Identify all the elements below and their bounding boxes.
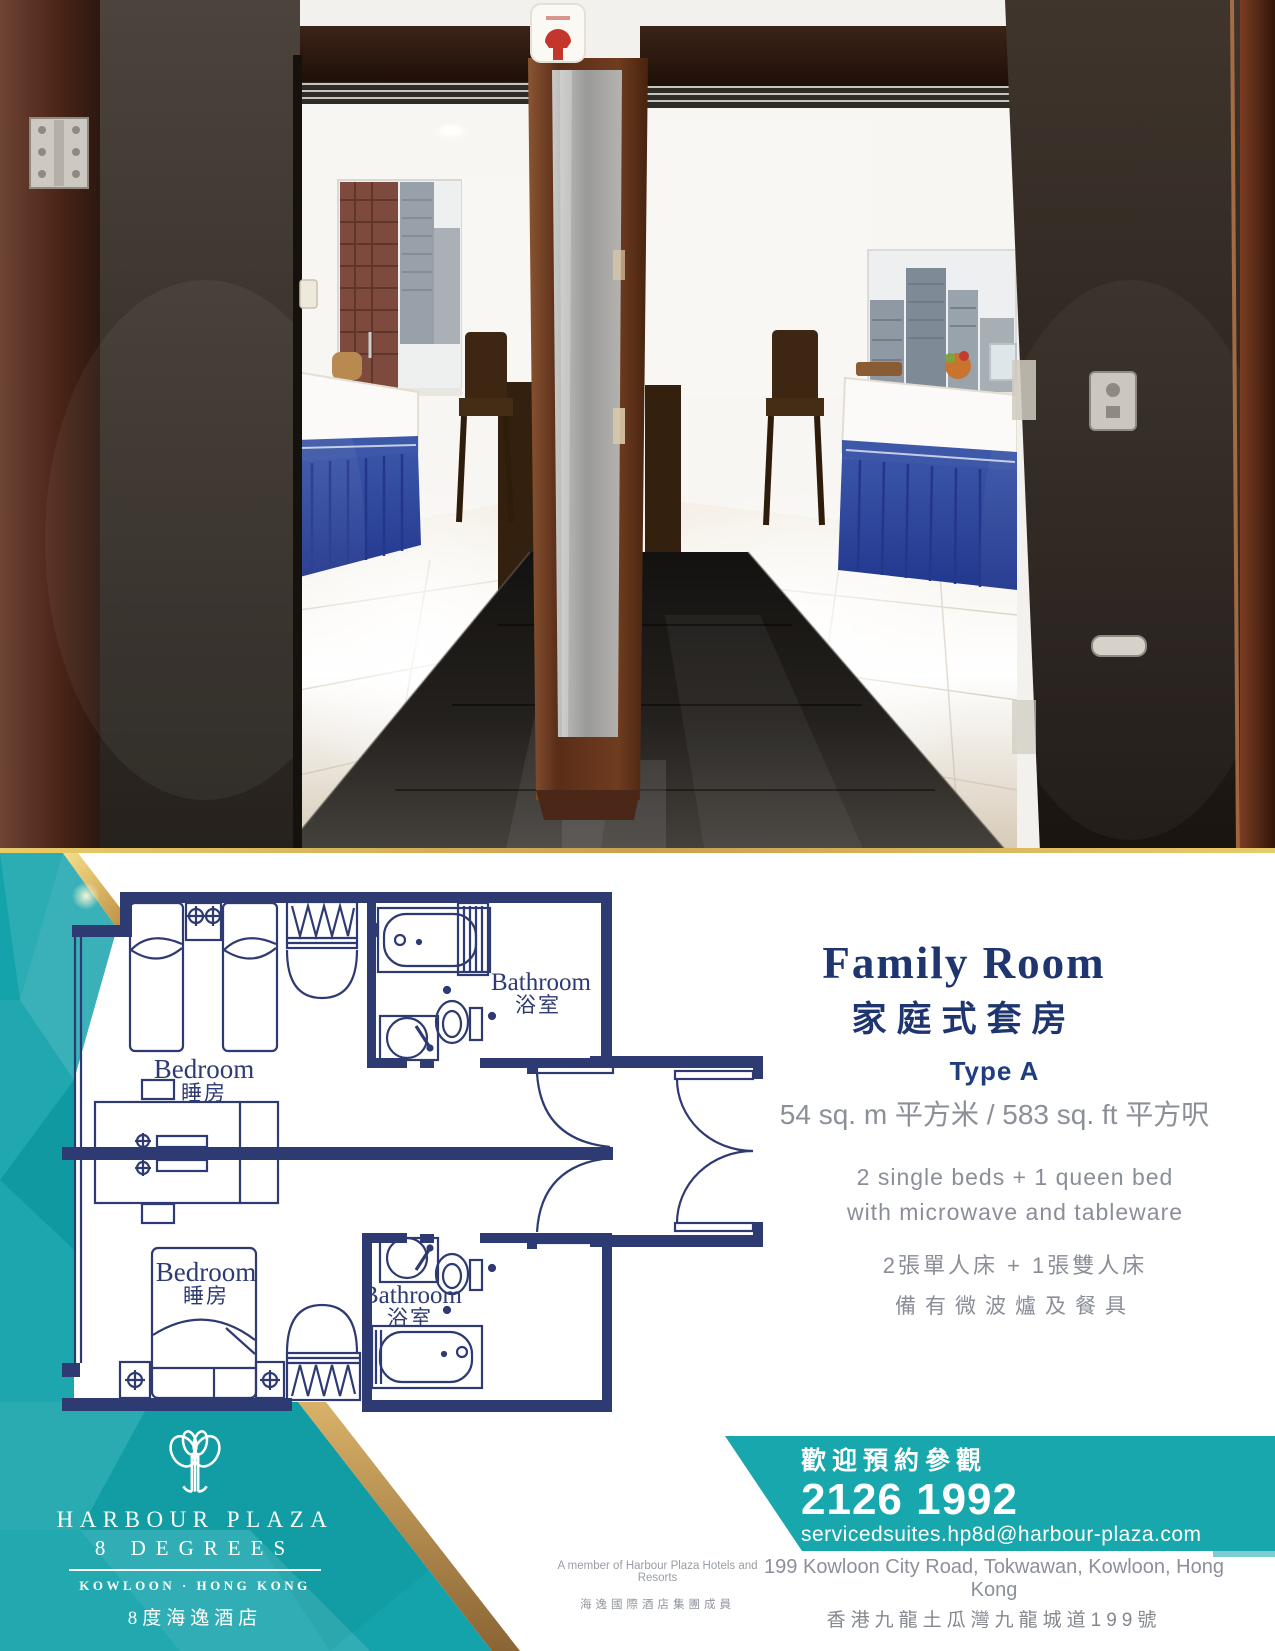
light-switch [300, 280, 317, 308]
logo-hotel-name-line2: 8 DEGREES [55, 1536, 335, 1561]
logo-hotel-name-line1: HARBOUR PLAZA [55, 1507, 335, 1533]
hotel-room-photo [0, 0, 1275, 853]
walls [62, 892, 763, 1412]
fire-alarm-icon [531, 4, 585, 62]
right-door-header [640, 26, 1032, 86]
door-hinge [1012, 360, 1036, 420]
tray [856, 362, 902, 376]
center-pillar [528, 58, 648, 820]
feature-zh-line1: 2張單人床 + 1張雙人床 [780, 1248, 1250, 1280]
address-block: 199 Kowloon City Road, Tokwawan, Kowloon… [758, 1556, 1230, 1632]
feature-zh-line2: 備有微波爐及餐具 [780, 1290, 1250, 1320]
bedroom-bottom-label: Bedroom [156, 1257, 257, 1287]
bathroom-bottom-label-zh: 浴室 [387, 1306, 433, 1330]
room-title-zh: 家庭式套房 [744, 991, 1184, 1042]
bathroom-top-label-zh: 浴室 [515, 993, 561, 1017]
bedroom-top-label-zh: 睡房 [181, 1081, 227, 1105]
membership-zh: 海逸國際酒店集團成員 [540, 1596, 775, 1612]
contact-banner: 歡迎預約參觀 2126 1992 servicedsuites.hp8d@har… [723, 1436, 1275, 1551]
room-title-block: Family Room 家庭式套房 [744, 940, 1184, 1042]
phone-number: 2126 1992 [801, 1477, 1202, 1523]
email-address: servicedsuites.hp8d@harbour-plaza.com [801, 1523, 1202, 1547]
feature-en-line2: with microwave and tableware [780, 1195, 1250, 1230]
hotel-logo: HARBOUR PLAZA 8 DEGREES KOWLOON · HONG K… [55, 1428, 335, 1630]
logo-location: KOWLOON · HONG KONG [55, 1578, 335, 1594]
bedroom-bottom-label-zh: 睡房 [183, 1284, 229, 1308]
room-type-block: Type A 54 sq. m 平方米 / 583 sq. ft 平方呎 [762, 1056, 1227, 1133]
room-features: 2 single beds + 1 queen bed with microwa… [780, 1160, 1250, 1320]
door-handle [1092, 636, 1146, 656]
membership-block: A member of Harbour Plaza Hotels and Res… [540, 1560, 775, 1612]
door-hinge [1012, 700, 1036, 754]
right-door-frame [1240, 0, 1275, 853]
room-type-label: Type A [762, 1056, 1227, 1087]
logo-hotel-name-zh: 8度海逸酒店 [55, 1603, 335, 1630]
door-lock [1090, 372, 1136, 430]
room-title-en: Family Room [744, 940, 1184, 987]
left-door-hinge [30, 118, 88, 188]
feature-en-line1: 2 single beds + 1 queen bed [780, 1160, 1250, 1195]
address-en: 199 Kowloon City Road, Tokwawan, Kowloon… [758, 1556, 1230, 1602]
bathroom-top-label: Bathroom [491, 969, 592, 996]
door-hinge [613, 408, 625, 444]
visit-invitation: 歡迎預約參觀 [801, 1441, 1202, 1477]
floor-plan: Bedroom 睡房 Bedroom 睡房 Bathroom 浴室 Bathro… [55, 880, 770, 1420]
membership-en: A member of Harbour Plaza Hotels and Res… [540, 1560, 775, 1584]
bathroom-bottom-label: Bathroom [362, 1282, 463, 1309]
tree-logo-icon [159, 1428, 231, 1498]
logo-divider [69, 1569, 321, 1571]
wine-basket [332, 352, 362, 380]
address-zh: 香港九龍土瓜灣九龍城道199號 [758, 1605, 1230, 1632]
room-area: 54 sq. m 平方米 / 583 sq. ft 平方呎 [762, 1093, 1227, 1133]
right-open-door [980, 0, 1275, 853]
bedroom-top-label: Bedroom [154, 1054, 255, 1084]
